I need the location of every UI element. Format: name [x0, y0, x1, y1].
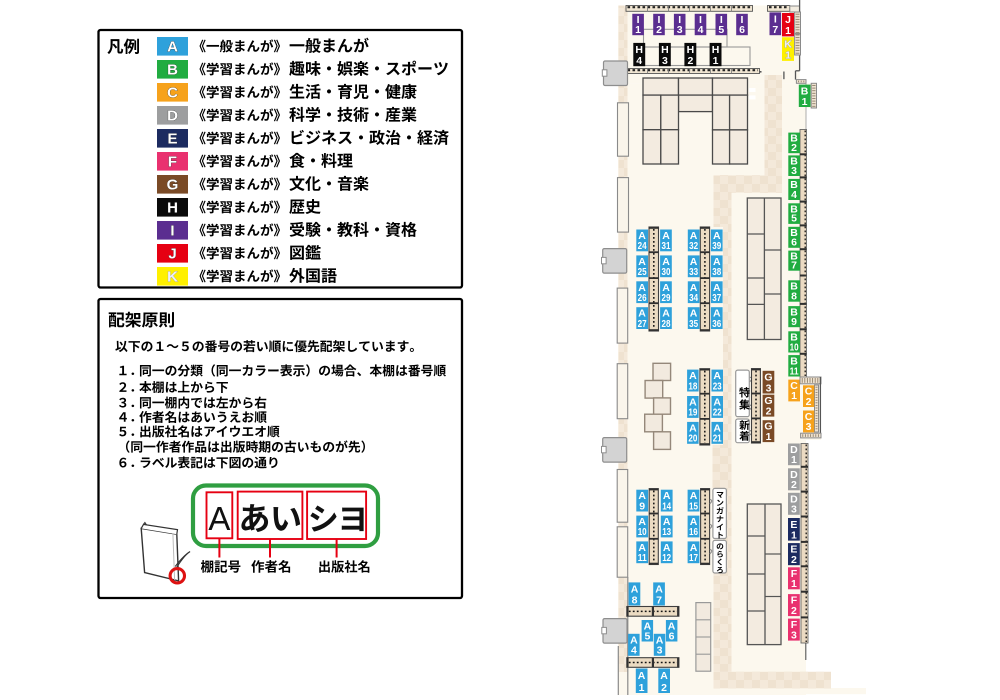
svg-text:39: 39	[712, 240, 721, 252]
svg-text:5: 5	[644, 630, 650, 642]
svg-text:35: 35	[689, 318, 698, 330]
svg-text:27: 27	[638, 318, 647, 330]
svg-text:H: H	[167, 200, 178, 217]
svg-text:6: 6	[669, 630, 675, 642]
svg-text:2: 2	[791, 554, 797, 566]
svg-text:5: 5	[718, 24, 724, 36]
svg-text:34: 34	[689, 292, 698, 304]
svg-text:A: A	[167, 39, 178, 56]
svg-text:10: 10	[790, 341, 799, 353]
svg-text:A: A	[660, 670, 668, 682]
svg-text:10: 10	[638, 526, 647, 538]
svg-text:6: 6	[739, 24, 745, 36]
svg-text:3: 3	[677, 24, 683, 36]
svg-text:2: 2	[791, 142, 797, 154]
svg-text:25: 25	[638, 266, 647, 278]
svg-text:12: 12	[662, 552, 671, 564]
svg-text:16: 16	[689, 526, 698, 538]
svg-text:B: B	[167, 62, 178, 79]
svg-text:1: 1	[785, 50, 791, 62]
svg-text:1: 1	[766, 431, 772, 443]
svg-text:1: 1	[639, 682, 645, 694]
svg-text:C: C	[167, 85, 178, 102]
svg-text:1: 1	[791, 578, 797, 590]
svg-text:24: 24	[638, 240, 647, 252]
svg-text:5: 5	[791, 213, 797, 225]
svg-text:6: 6	[791, 237, 797, 249]
svg-text:2: 2	[791, 605, 797, 617]
svg-text:I: I	[170, 223, 174, 240]
svg-text:37: 37	[712, 292, 721, 304]
svg-text:18: 18	[688, 380, 697, 392]
svg-text:3: 3	[791, 629, 797, 641]
svg-text:1: 1	[791, 390, 797, 402]
svg-text:A: A	[208, 500, 230, 537]
svg-text:F: F	[168, 154, 177, 171]
svg-text:2: 2	[791, 479, 797, 491]
svg-text:14: 14	[662, 500, 671, 512]
svg-text:3: 3	[657, 645, 663, 657]
svg-text:21: 21	[713, 433, 722, 445]
svg-text:1: 1	[791, 454, 797, 466]
svg-text:28: 28	[662, 318, 671, 330]
svg-text:30: 30	[662, 266, 671, 278]
svg-text:8: 8	[791, 291, 797, 303]
svg-text:1: 1	[713, 55, 719, 67]
svg-text:22: 22	[713, 407, 722, 419]
svg-text:23: 23	[713, 380, 722, 392]
svg-text:36: 36	[712, 318, 721, 330]
svg-text:3: 3	[766, 382, 772, 394]
svg-text:1: 1	[802, 96, 808, 108]
svg-text:19: 19	[688, 407, 697, 419]
svg-text:2: 2	[806, 396, 812, 408]
svg-text:4: 4	[636, 55, 642, 67]
svg-text:3: 3	[806, 421, 812, 433]
svg-text:11: 11	[790, 365, 799, 377]
svg-text:31: 31	[662, 240, 671, 252]
svg-text:15: 15	[689, 500, 698, 512]
svg-text:7: 7	[791, 260, 797, 272]
svg-text:9: 9	[639, 500, 645, 512]
svg-text:2: 2	[687, 55, 693, 67]
svg-text:A: A	[638, 670, 646, 682]
svg-text:26: 26	[638, 292, 647, 304]
svg-text:1: 1	[791, 529, 797, 541]
svg-text:33: 33	[689, 266, 698, 278]
svg-text:1: 1	[635, 24, 641, 36]
svg-text:3: 3	[791, 504, 797, 516]
svg-text:2: 2	[766, 405, 772, 417]
svg-text:7: 7	[772, 24, 778, 36]
svg-text:4: 4	[791, 189, 797, 201]
svg-text:3: 3	[791, 165, 797, 177]
svg-text:4: 4	[631, 645, 637, 657]
svg-text:E: E	[167, 131, 177, 148]
svg-text:K: K	[784, 39, 792, 51]
svg-text:13: 13	[662, 526, 671, 538]
svg-text:38: 38	[712, 266, 721, 278]
svg-text:17: 17	[689, 552, 698, 564]
svg-text:K: K	[167, 269, 178, 286]
svg-text:2: 2	[656, 24, 662, 36]
svg-text:3: 3	[662, 55, 668, 67]
svg-text:G: G	[167, 177, 179, 194]
svg-text:4: 4	[698, 24, 704, 36]
svg-text:20: 20	[688, 433, 697, 445]
svg-text:32: 32	[689, 240, 698, 252]
svg-text:11: 11	[638, 552, 647, 564]
svg-text:29: 29	[662, 292, 671, 304]
svg-text:9: 9	[791, 316, 797, 328]
svg-text:J: J	[168, 246, 176, 263]
svg-text:2: 2	[661, 682, 667, 694]
svg-text:D: D	[167, 108, 178, 125]
svg-text:7: 7	[656, 594, 662, 606]
svg-text:1: 1	[785, 25, 791, 37]
svg-text:8: 8	[632, 594, 638, 606]
